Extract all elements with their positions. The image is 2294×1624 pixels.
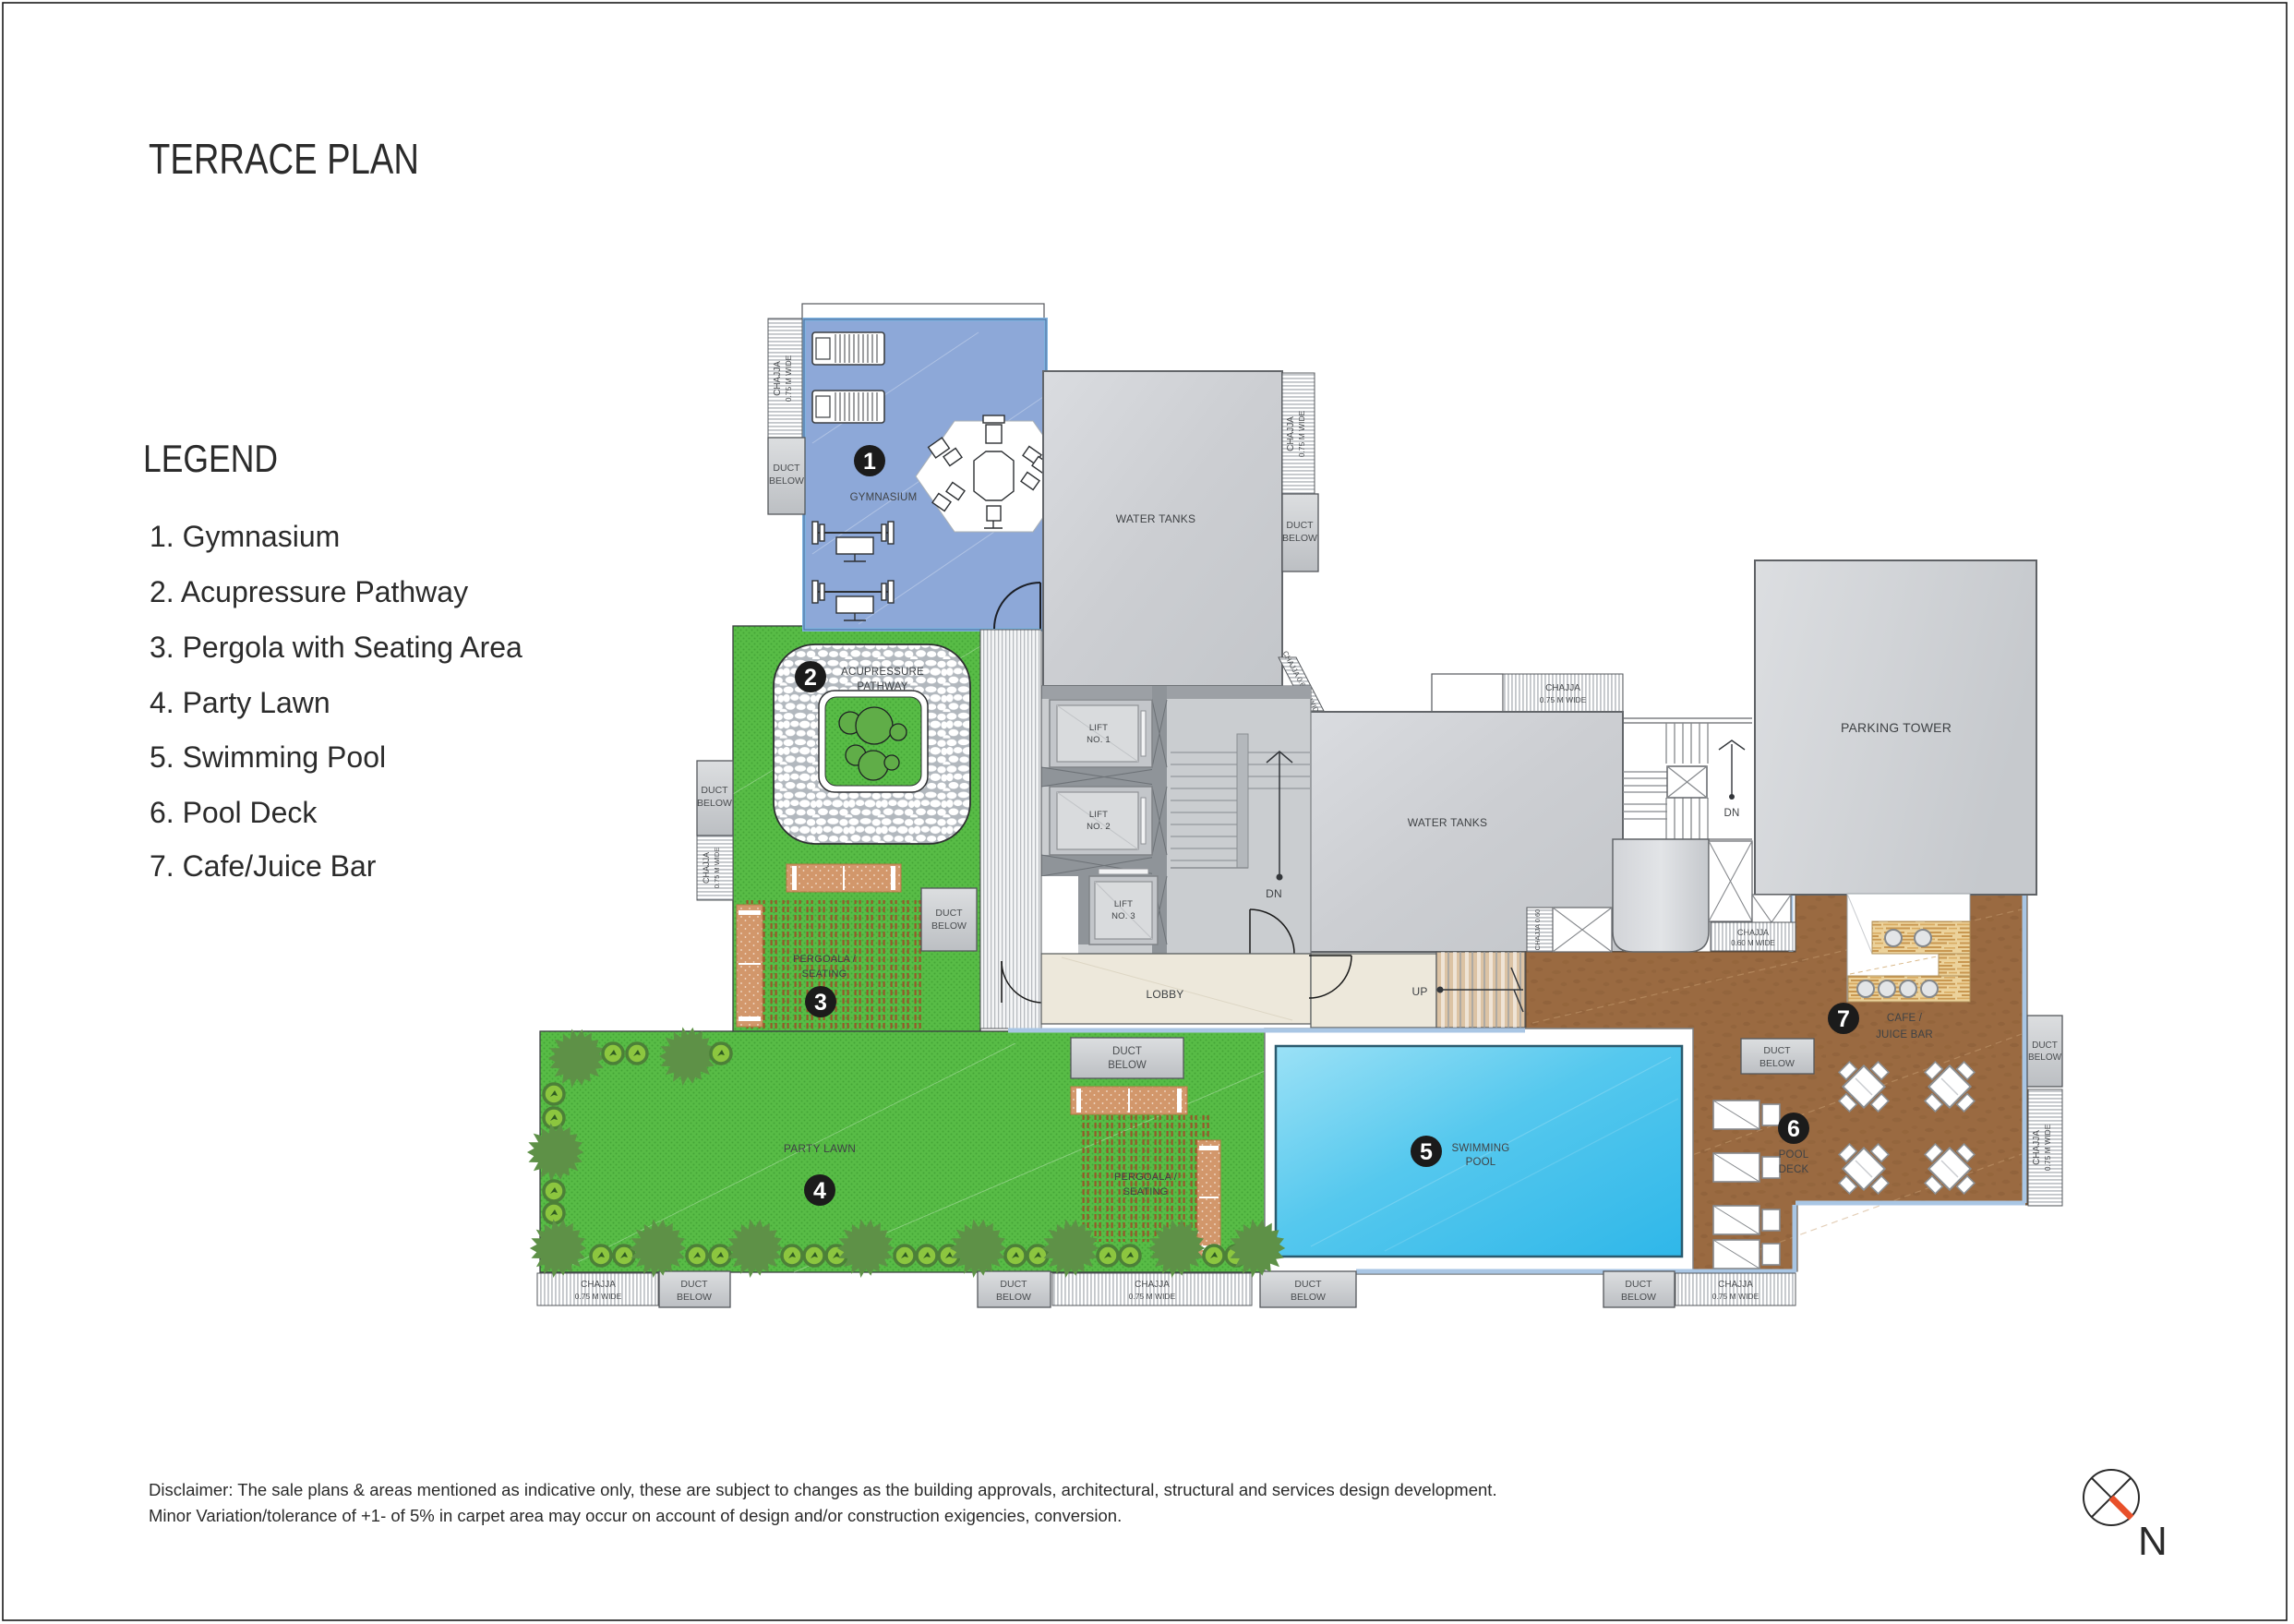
svg-text:CHAJJA: CHAJJA: [1135, 1280, 1170, 1290]
svg-text:CHAJJA: CHAJJA: [773, 361, 783, 396]
svg-text:6. Pool Deck: 6. Pool Deck: [150, 796, 318, 829]
svg-text:6: 6: [1787, 1116, 1800, 1142]
svg-text:DUCT: DUCT: [1763, 1045, 1791, 1056]
svg-text:4. Party Lawn: 4. Party Lawn: [150, 686, 330, 719]
svg-text:TERRACE PLAN: TERRACE PLAN: [149, 135, 419, 183]
svg-text:4: 4: [813, 1178, 826, 1204]
svg-text:SWIMMING: SWIMMING: [1452, 1143, 1510, 1154]
svg-text:3. Pergola with Seating Area: 3. Pergola with Seating Area: [150, 631, 522, 664]
svg-text:DUCT: DUCT: [680, 1279, 708, 1290]
svg-text:2. Acupressure Pathway: 2. Acupressure Pathway: [150, 575, 468, 608]
svg-text:CHAJJA: CHAJJA: [702, 852, 711, 884]
svg-text:DUCT: DUCT: [2032, 1041, 2058, 1051]
svg-text:0.75 M WIDE: 0.75 M WIDE: [1297, 410, 1306, 457]
svg-text:0.75 M WIDE: 0.75 M WIDE: [1712, 1292, 1760, 1301]
svg-text:LIFT: LIFT: [1089, 810, 1108, 820]
svg-text:DUCT: DUCT: [1286, 520, 1314, 531]
svg-text:BELOW: BELOW: [769, 475, 804, 487]
svg-text:DN: DN: [1724, 808, 1739, 819]
svg-text:NO. 2: NO. 2: [1087, 822, 1111, 832]
svg-text:PARKING TOWER: PARKING TOWER: [1841, 720, 1952, 735]
svg-text:DUCT: DUCT: [773, 463, 800, 474]
svg-text:7. Cafe/Juice Bar: 7. Cafe/Juice Bar: [150, 849, 377, 883]
svg-text:SEATING: SEATING: [1123, 1186, 1169, 1197]
svg-text:CHAJJA: CHAJJA: [1718, 1280, 1753, 1290]
svg-text:Disclaimer: The sale plans & a: Disclaimer: The sale plans & areas menti…: [149, 1480, 1497, 1499]
svg-text:PERGOALA /: PERGOALA /: [793, 954, 857, 965]
svg-text:5: 5: [1420, 1139, 1433, 1165]
svg-text:1: 1: [863, 449, 876, 475]
svg-text:BELOW: BELOW: [697, 798, 732, 809]
svg-text:2: 2: [804, 665, 817, 691]
svg-text:UP: UP: [1411, 985, 1427, 998]
svg-text:BELOW: BELOW: [1621, 1292, 1656, 1303]
svg-text:BELOW: BELOW: [677, 1292, 712, 1303]
svg-text:POOL: POOL: [1779, 1149, 1809, 1161]
svg-text:BELOW: BELOW: [996, 1292, 1031, 1303]
svg-text:BELOW: BELOW: [1291, 1292, 1326, 1303]
svg-text:7: 7: [1837, 1006, 1850, 1032]
svg-text:DUCT: DUCT: [1625, 1279, 1652, 1290]
svg-text:PARTY LAWN: PARTY LAWN: [784, 1142, 856, 1155]
svg-text:DUCT: DUCT: [701, 785, 728, 796]
svg-text:Minor Variation/tolerance of +: Minor Variation/tolerance of +1- of 5% i…: [149, 1506, 1122, 1525]
svg-text:LIFT: LIFT: [1089, 723, 1108, 733]
svg-text:NO. 3: NO. 3: [1111, 911, 1135, 921]
svg-text:DUCT: DUCT: [935, 908, 963, 919]
svg-text:DUCT: DUCT: [1112, 1046, 1142, 1057]
svg-text:PATHWAY: PATHWAY: [857, 681, 907, 692]
svg-text:1. Gymnasium: 1. Gymnasium: [150, 520, 340, 553]
svg-text:BELOW: BELOW: [1282, 533, 1317, 544]
svg-text:0.75 M WIDE: 0.75 M WIDE: [713, 848, 721, 889]
svg-text:LEGEND: LEGEND: [143, 437, 278, 480]
svg-text:CHAJJA: CHAJJA: [1286, 416, 1296, 451]
svg-text:0.75 M WIDE: 0.75 M WIDE: [1540, 695, 1587, 704]
svg-text:ACUPRESSURE: ACUPRESSURE: [841, 667, 924, 678]
svg-text:BELOW: BELOW: [1108, 1060, 1147, 1071]
svg-text:CHAJJA: CHAJJA: [2032, 1130, 2042, 1165]
svg-text:CAFE /: CAFE /: [1887, 1013, 1923, 1024]
svg-text:DUCT: DUCT: [1294, 1279, 1322, 1290]
svg-text:DECK: DECK: [1779, 1164, 1809, 1175]
svg-text:LOBBY: LOBBY: [1146, 988, 1183, 1001]
svg-text:0.75 M WIDE: 0.75 M WIDE: [2043, 1124, 2052, 1171]
svg-text:DUCT: DUCT: [1000, 1279, 1027, 1290]
svg-text:SEATING: SEATING: [802, 968, 847, 980]
svg-text:5. Swimming Pool: 5. Swimming Pool: [150, 740, 386, 774]
svg-text:0.75 M WIDE: 0.75 M WIDE: [575, 1292, 622, 1301]
svg-text:BELOW: BELOW: [931, 920, 967, 932]
svg-text:BELOW: BELOW: [2028, 1053, 2062, 1063]
svg-text:NO. 1: NO. 1: [1087, 735, 1111, 745]
svg-text:CHAJJA: CHAJJA: [1545, 683, 1580, 693]
svg-text:0.60 M WIDE: 0.60 M WIDE: [1731, 939, 1775, 947]
svg-text:WATER TANKS: WATER TANKS: [1116, 512, 1195, 525]
svg-text:JUICE BAR: JUICE BAR: [1876, 1029, 1933, 1041]
svg-text:GYMNASIUM: GYMNASIUM: [850, 492, 918, 503]
svg-text:BELOW: BELOW: [1760, 1058, 1795, 1069]
svg-text:WATER TANKS: WATER TANKS: [1408, 816, 1487, 829]
svg-text:PERGOALA /: PERGOALA /: [1114, 1172, 1178, 1183]
svg-text:POOL: POOL: [1466, 1157, 1496, 1168]
svg-text:3: 3: [814, 990, 827, 1016]
svg-text:0.75 M WIDE: 0.75 M WIDE: [1129, 1292, 1176, 1301]
svg-text:0.75 M WIDE: 0.75 M WIDE: [784, 355, 793, 402]
svg-text:CHAJJA 0.60: CHAJJA 0.60: [1533, 909, 1542, 951]
svg-text:N: N: [2138, 1519, 2168, 1564]
svg-text:DN: DN: [1266, 887, 1282, 900]
svg-text:CHAJJA: CHAJJA: [581, 1280, 616, 1290]
svg-text:LIFT: LIFT: [1114, 899, 1133, 909]
svg-text:CHAJJA: CHAJJA: [1737, 928, 1769, 937]
